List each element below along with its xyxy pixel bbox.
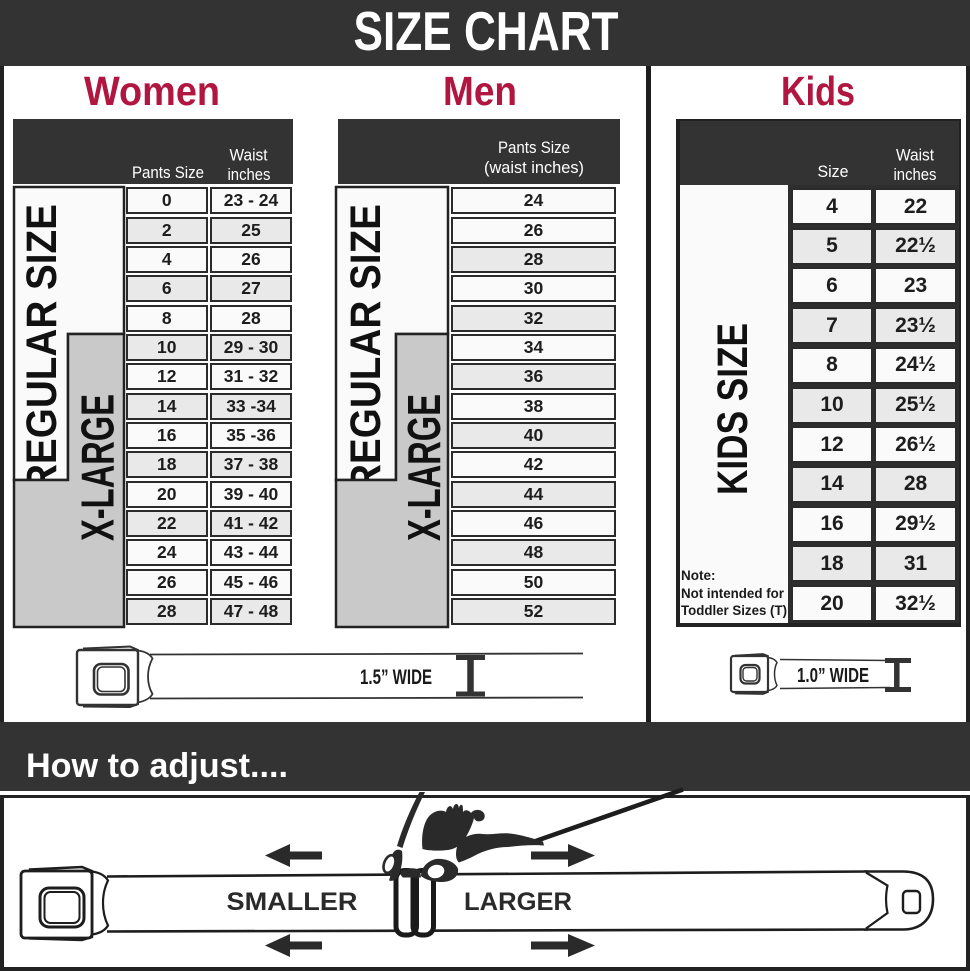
svg-text:LARGER: LARGER — [464, 888, 572, 916]
svg-text:SMALLER: SMALLER — [227, 888, 358, 916]
